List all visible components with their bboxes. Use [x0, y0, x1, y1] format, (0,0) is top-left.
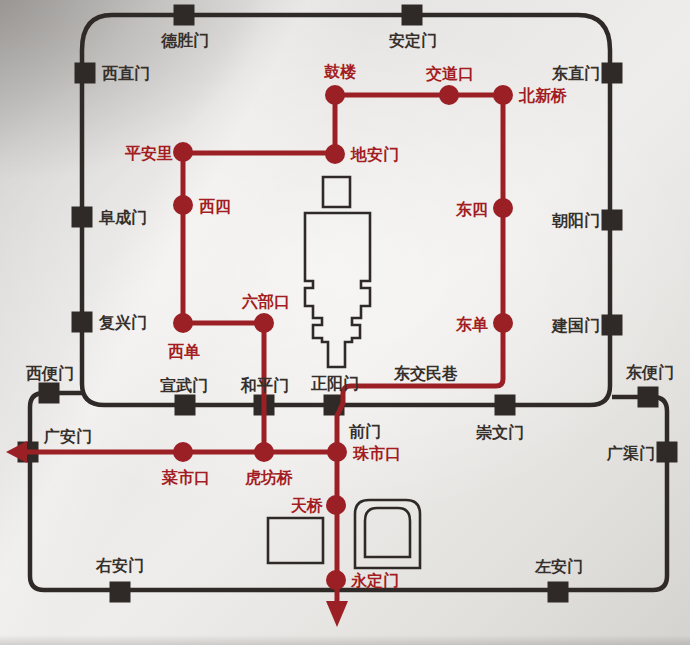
- station-label-dongsi: 东四: [455, 200, 488, 218]
- gate-label-youanmen: 右安门: [95, 556, 144, 574]
- station-label-pinganli: 平安里: [124, 145, 173, 162]
- station-label-tianqiao: 天桥: [290, 497, 323, 514]
- station-label-xisi: 西四: [198, 198, 231, 215]
- station-label-beixinqiao: 北新桥: [518, 87, 567, 104]
- gate-xizhimen: [75, 63, 96, 84]
- gate-dongbianmen: [638, 387, 659, 408]
- gate-label-guangqumen: 广渠门: [606, 444, 655, 462]
- gate-label-fuxingmen: 复兴门: [98, 313, 147, 331]
- station-dongsi: [493, 198, 513, 218]
- gate-chaoyangmen: [602, 210, 623, 231]
- gate-label-chongwenmen: 崇文门: [475, 423, 524, 441]
- gate-zuoanmen: [548, 582, 569, 603]
- station-zhushikou: [327, 442, 347, 462]
- gate-guangqumen: [657, 442, 678, 463]
- altar-square-west-outline: [268, 518, 323, 563]
- station-label-dongdan: 东单: [455, 315, 488, 333]
- gate-label-guanganmen: 广安门: [43, 427, 92, 445]
- station-label-xidan: 西单: [167, 343, 200, 360]
- route-arrow-west: [6, 441, 27, 463]
- gate-youanmen: [110, 582, 131, 603]
- transit-map-photo: 德胜门安定门西直门东直门阜成门朝阳门复兴门建国门宣武门和平门正阳门崇文门西便门东…: [0, 0, 690, 645]
- gate-label-xuanwumen: 宣武门: [160, 376, 208, 394]
- station-pinganli: [173, 142, 193, 162]
- station-label-jiaodaokou: 交道口: [425, 65, 474, 82]
- gate-dongzhimen: [602, 63, 623, 84]
- gate-label-andingmen: 安定门: [389, 31, 437, 49]
- street-label-dongjiaominxiang: 东交民巷: [393, 364, 458, 382]
- station-label-yongdingmen: 永定门: [350, 571, 399, 589]
- gate-label-xibianmen: 西便门: [25, 364, 74, 382]
- station-yongdingmen: [326, 570, 346, 590]
- gate-fuchengmen: [72, 207, 93, 228]
- station-gulou: [325, 85, 345, 105]
- station-label-dianmen: 地安门: [350, 145, 399, 163]
- gate-chongwenmen: [495, 395, 516, 416]
- station-caishikou: [173, 442, 193, 462]
- gate-xibianmen: [39, 383, 60, 404]
- gate-andingmen: [402, 5, 423, 26]
- station-xisi: [173, 195, 193, 215]
- station-label-liubukou: 六部口: [241, 292, 290, 310]
- gate-jianguomen: [602, 315, 623, 336]
- gate-label-hepingmen: 和平门: [240, 376, 289, 394]
- station-dianmen: [325, 144, 345, 164]
- station-label-caishikou: 菜市口: [161, 468, 210, 486]
- station-liubukou: [254, 313, 274, 333]
- station-beixinqiao: [493, 85, 513, 105]
- gate-deshengmen: [174, 5, 195, 26]
- station-tianqiao: [326, 495, 346, 515]
- station-hufangqiao: [254, 442, 274, 462]
- gate-label-fuchengmen: 阜成门: [98, 208, 147, 226]
- gate-label-jianguomen: 建国门: [551, 316, 600, 334]
- station-dongdan: [493, 313, 513, 333]
- gate-label-zuoanmen: 左安门: [534, 557, 583, 575]
- street-label-qianmen: 前门: [348, 422, 381, 440]
- palace-axis-outline-outline: [305, 213, 370, 367]
- gate-label-dongbianmen: 东便门: [625, 363, 674, 381]
- station-label-hufangqiao: 虎坊桥: [244, 469, 293, 486]
- gate-xuanwumen: [175, 395, 196, 416]
- map-svg: 德胜门安定门西直门东直门阜成门朝阳门复兴门建国门宣武门和平门正阳门崇文门西便门东…: [0, 0, 690, 645]
- station-jiaodaokou: [439, 85, 459, 105]
- route-arrow-south: [326, 601, 348, 627]
- gate-label-deshengmen: 德胜门: [160, 31, 209, 49]
- station-xidan: [173, 313, 193, 333]
- gate-label-dongzhimen: 东直门: [551, 64, 600, 82]
- temple-of-heaven-inner-outline: [365, 508, 410, 557]
- palace-north-square-outline: [323, 177, 350, 207]
- gate-fuxingmen: [72, 312, 93, 333]
- station-label-zhushikou: 珠市口: [352, 444, 401, 462]
- gate-label-chaoyangmen: 朝阳门: [551, 211, 600, 229]
- station-label-gulou: 鼓楼: [323, 63, 357, 80]
- gate-label-zhengyangmen: 正阳门: [310, 374, 359, 392]
- gate-label-xizhimen: 西直门: [101, 64, 150, 82]
